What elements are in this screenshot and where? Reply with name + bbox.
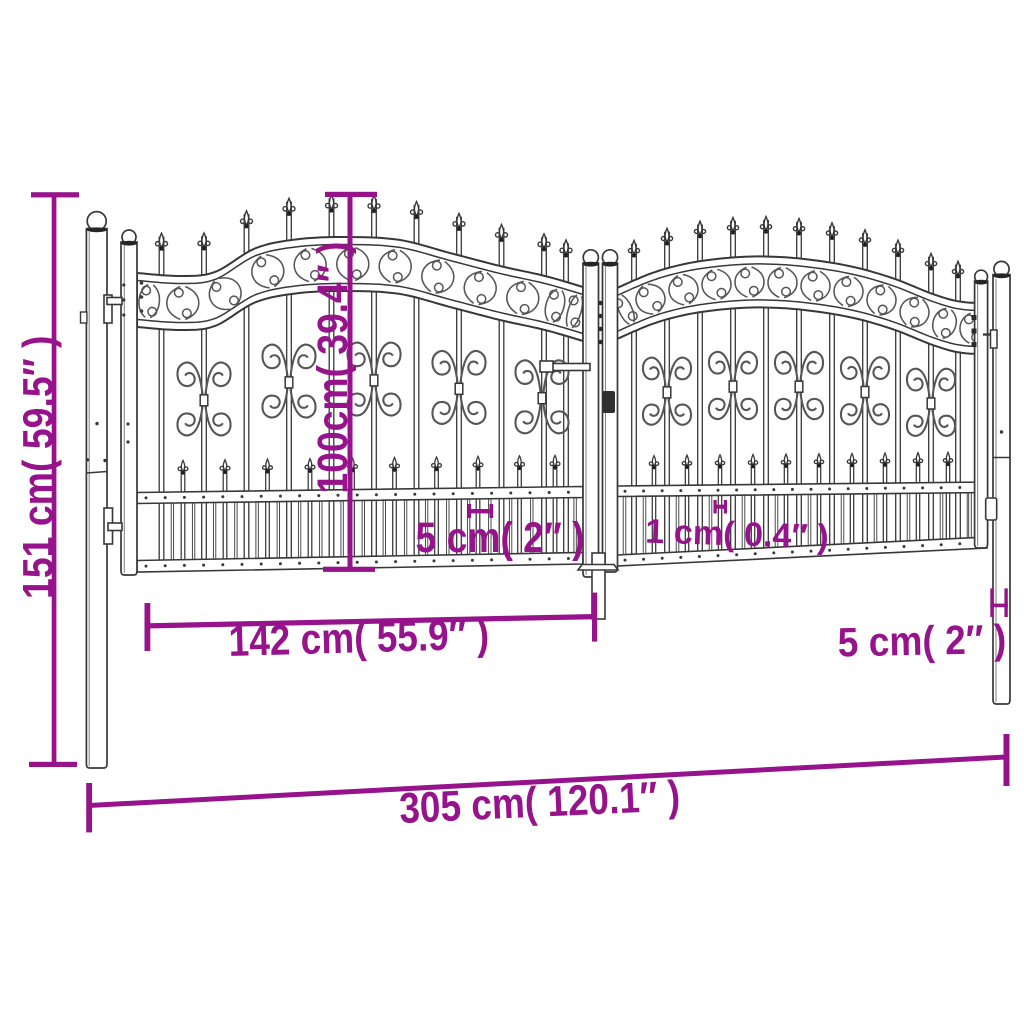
svg-text:142 cm( 55.9″ ): 142 cm( 55.9″ ) [228,611,490,666]
svg-text:5 cm( 2″ ): 5 cm( 2″ ) [416,514,585,562]
svg-text:100cm( 39.4″ ): 100cm( 39.4″ ) [309,242,357,494]
svg-text:151 cm( 59.5″ ): 151 cm( 59.5″ ) [14,336,62,600]
svg-text:5 cm( 2″ ): 5 cm( 2″ ) [837,616,1006,666]
svg-text:1 cm( 0.4″ ): 1 cm( 0.4″ ) [645,513,830,557]
